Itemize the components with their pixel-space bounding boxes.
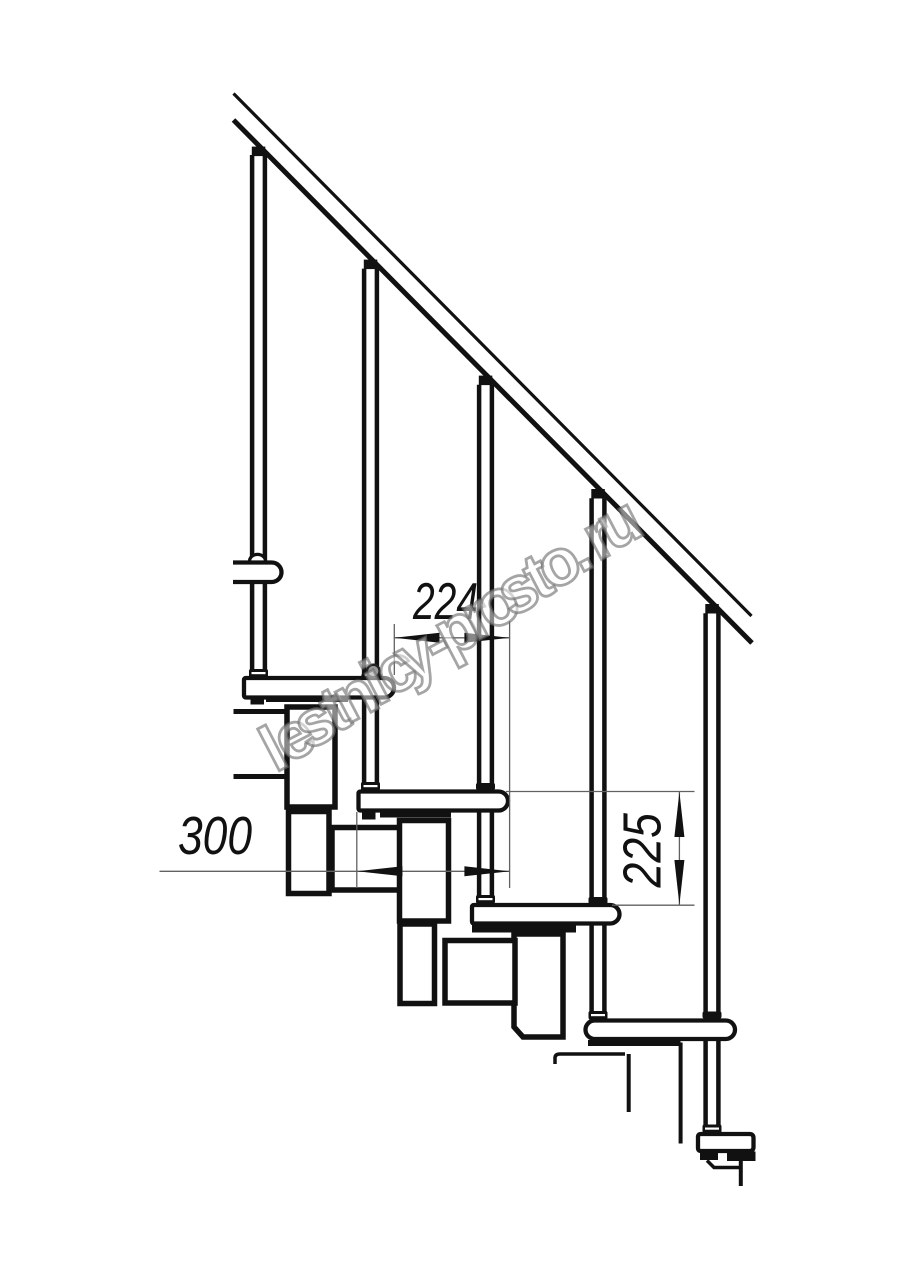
- svg-text:225: 225: [613, 812, 673, 888]
- svg-text:300: 300: [178, 806, 252, 866]
